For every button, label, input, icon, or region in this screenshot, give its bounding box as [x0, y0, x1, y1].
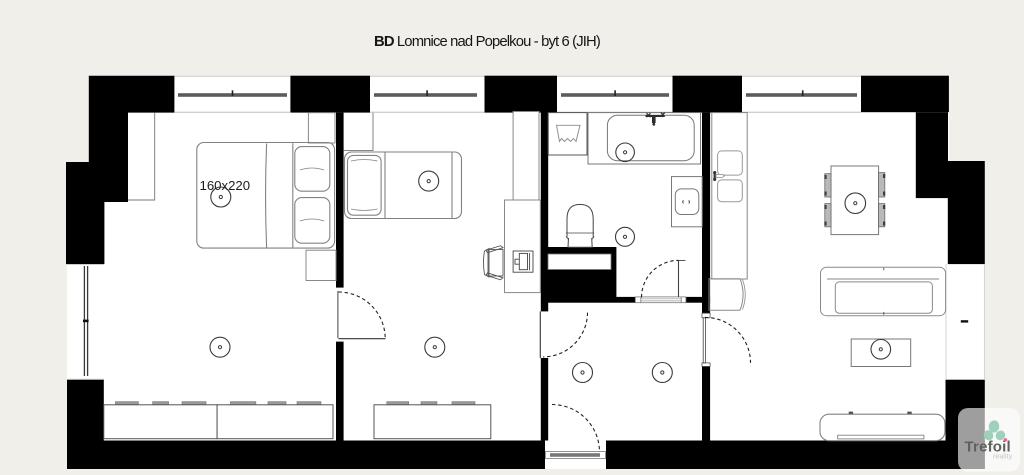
svg-text:160x220: 160x220 [200, 178, 251, 193]
svg-text:BD Lomnice nad Popelkou - byt: BD Lomnice nad Popelkou - byt 6 (JIH) [374, 34, 601, 50]
svg-text:reality: reality [993, 452, 1013, 461]
